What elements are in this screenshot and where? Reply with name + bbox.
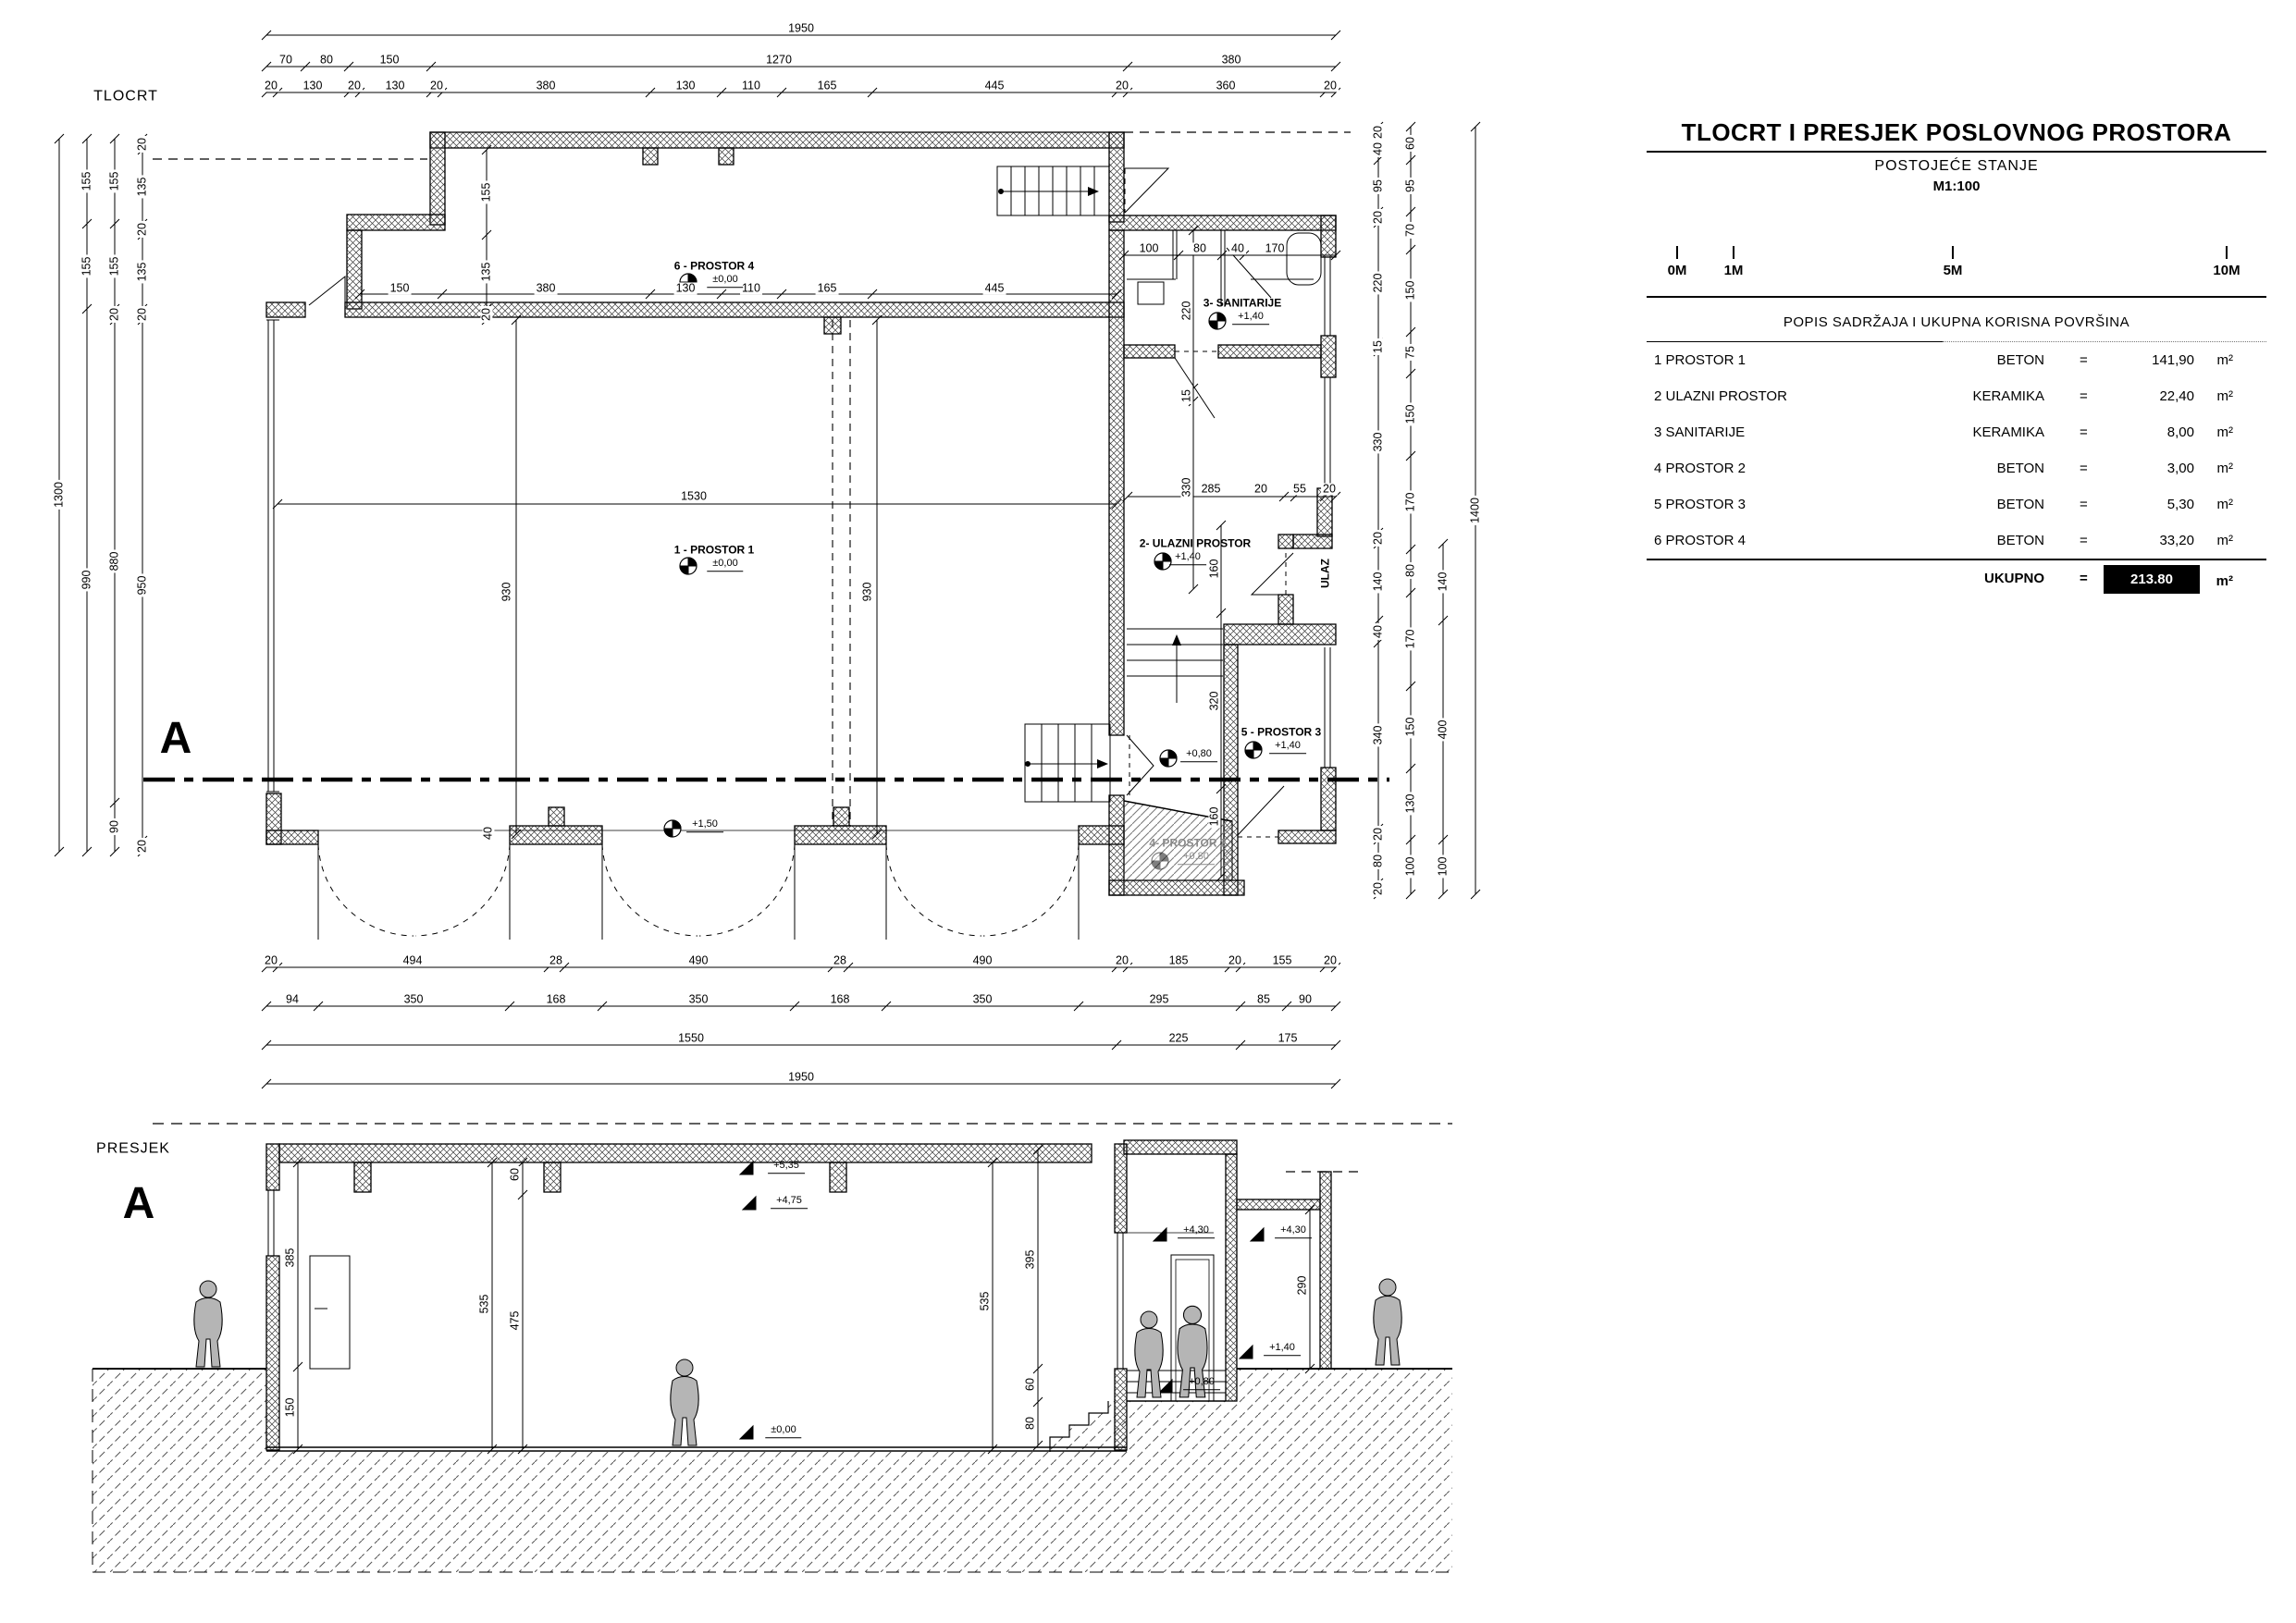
scale-bar-tick (1952, 246, 1954, 259)
dim-label: 130 (384, 80, 407, 92)
level-label: +1,40 (1264, 1343, 1301, 1356)
room-label: 6 - PROSTOR 4 (673, 261, 756, 273)
dim-label: 225 (1167, 1032, 1191, 1044)
dim-label: 80 (1404, 562, 1416, 579)
row-material: KERAMIKA (1972, 388, 2044, 404)
room-label: 4- PROSTOR 2 (1147, 838, 1228, 850)
dim-label: 170 (1404, 491, 1416, 514)
dim-label: 395 (1024, 1248, 1036, 1272)
dim-label: 155 (108, 170, 120, 193)
dim-label: 75 (1404, 344, 1416, 361)
dim-label: 70 (278, 54, 294, 66)
dim-label: 160 (1208, 805, 1220, 829)
level-label: +1,50 (686, 819, 723, 832)
dim-label: 40 (1372, 141, 1384, 157)
row-unit: m² (2217, 352, 2234, 368)
dim-label: 535 (979, 1290, 991, 1313)
dim-label: 28 (832, 954, 848, 966)
dim-label: 140 (1372, 571, 1384, 594)
dim-label: 150 (378, 54, 401, 66)
dim-label: 380 (535, 80, 558, 92)
dim-label: 150 (1404, 403, 1416, 426)
dim-label: 135 (136, 176, 148, 199)
dim-label: 160 (1208, 558, 1220, 581)
dim-label: 135 (480, 261, 492, 284)
dim-label: 360 (1215, 80, 1238, 92)
row-material: BETON (1997, 352, 2044, 368)
dim-label: 400 (1437, 719, 1449, 742)
dim-label: 80 (318, 54, 335, 66)
dim-label: 20 (1372, 880, 1384, 897)
dim-label: 155 (80, 170, 93, 193)
person-silhouette (1135, 1311, 1163, 1397)
dim-label: 150 (1404, 716, 1416, 739)
sheet-subtitle: POSTOJEĆE STANJE (1647, 158, 2266, 175)
level-label: ±0,00 (765, 1425, 801, 1438)
dim-label: 20 (428, 80, 445, 92)
dim-label: 155 (1271, 954, 1294, 966)
level-label: +1,40 (1232, 312, 1269, 325)
dim-label: 950 (136, 574, 148, 597)
section-view (93, 1124, 1452, 1572)
area-table-row: 2 ULAZNI PROSTORKERAMIKA=22,40m² (1647, 378, 2266, 414)
area-table: POPIS SADRŽAJA I UKUPNA KORISNA POVRŠINA… (1647, 296, 2266, 603)
dim-label: 40 (482, 825, 494, 842)
scale-bar-tick (1733, 246, 1734, 259)
level-label: ±0,00 (707, 559, 743, 572)
dim-label: 165 (816, 282, 839, 294)
drawing-sheet: 1950708015012703802013020130203801301101… (0, 0, 2296, 1623)
dim-label: 350 (402, 993, 426, 1005)
dim-label: 94 (284, 993, 301, 1005)
dim-label: 330 (1372, 431, 1384, 454)
person-silhouette (194, 1281, 222, 1367)
dim-label: 15 (1372, 338, 1384, 355)
dim-label: 490 (971, 954, 994, 966)
dim-label: 220 (1372, 272, 1384, 295)
dim-label: 295 (1148, 993, 1171, 1005)
dim-label: 20 (136, 838, 148, 855)
dim-label: 20 (136, 306, 148, 323)
dim-label: 80 (1372, 853, 1384, 869)
dim-label: 20 (136, 221, 148, 238)
dim-label: 175 (1277, 1032, 1300, 1044)
room-label: 3- SANITARIJE (1202, 298, 1283, 310)
row-name: 1 PROSTOR 1 (1654, 352, 1746, 368)
dim-label: 20 (1114, 954, 1130, 966)
row-unit: m² (2217, 497, 2234, 512)
dim-label: 150 (284, 1396, 296, 1420)
dim-label: 130 (302, 80, 325, 92)
area-table-row: 5 PROSTOR 3BETON=5,30m² (1647, 486, 2266, 523)
dim-label: 20 (108, 306, 120, 323)
row-material: BETON (1997, 497, 2044, 512)
area-table-row: 6 PROSTOR 4BETON=33,20m² (1647, 523, 2266, 559)
row-value: 141,90 (2083, 352, 2194, 368)
row-unit: m² (2217, 461, 2234, 476)
dim-label: 290 (1296, 1274, 1308, 1297)
total-unit: m² (2216, 573, 2233, 589)
dim-label: 20 (346, 80, 363, 92)
dim-label: 28 (548, 954, 564, 966)
dim-label: 320 (1208, 690, 1220, 713)
dim-label: 130 (674, 282, 697, 294)
level-label: +4,75 (771, 1196, 808, 1209)
row-unit: m² (2217, 388, 2234, 404)
dim-label: 150 (389, 282, 412, 294)
dim-label: 535 (478, 1293, 490, 1316)
level-label: +4,30 (1275, 1225, 1312, 1238)
room-label: 5 - PROSTOR 3 (1240, 727, 1323, 739)
area-table-rows: 1 PROSTOR 1BETON=141,90m²2 ULAZNI PROSTO… (1647, 342, 2266, 559)
dim-label: 170 (1404, 628, 1416, 651)
dim-label: 285 (1200, 483, 1223, 495)
row-name: 2 ULAZNI PROSTOR (1654, 388, 1787, 404)
area-table-row: 4 PROSTOR 2BETON=3,00m² (1647, 450, 2266, 486)
row-value: 5,30 (2083, 497, 2194, 512)
dim-label: 20 (1253, 483, 1269, 495)
dim-label: 490 (687, 954, 710, 966)
dim-label: 95 (1404, 178, 1416, 194)
dim-label: 1270 (764, 54, 794, 66)
dim-label: 930 (861, 581, 873, 604)
row-value: 3,00 (2083, 461, 2194, 476)
dim-label: 1550 (676, 1032, 706, 1044)
dim-label: 20 (1321, 483, 1338, 495)
dim-label: 60 (1404, 135, 1416, 152)
dim-label: 155 (80, 255, 93, 278)
dim-label: 130 (674, 80, 697, 92)
row-material: BETON (1997, 461, 2044, 476)
dim-label: 380 (1220, 54, 1243, 66)
section-letter: A (158, 716, 194, 762)
dim-label: 80 (1024, 1415, 1036, 1432)
dim-label: 100 (1138, 242, 1161, 254)
scale-bar-label: 1M (1724, 263, 1744, 278)
dim-label: 20 (1227, 954, 1243, 966)
area-table-row: 1 PROSTOR 1BETON=141,90m² (1647, 342, 2266, 378)
total-equals: = (2080, 571, 2088, 586)
dim-label: 380 (535, 282, 558, 294)
sheet-scale: M1:100 (1647, 178, 2266, 194)
dim-label: 340 (1372, 724, 1384, 747)
dim-label: 70 (1404, 222, 1416, 239)
dim-label: 990 (80, 569, 93, 592)
area-table-row: 3 SANITARIJEKERAMIKA=8,00m² (1647, 414, 2266, 450)
dim-label: 385 (284, 1247, 296, 1270)
dim-label: 85 (1255, 993, 1272, 1005)
dim-label: 165 (816, 80, 839, 92)
dim-label: 930 (500, 581, 512, 604)
dim-label: 1530 (679, 490, 709, 502)
dim-label: 1400 (1469, 496, 1481, 525)
dim-label: 60 (509, 1166, 521, 1183)
dim-label: 20 (480, 306, 492, 323)
row-unit: m² (2217, 533, 2234, 548)
dim-label: 170 (1264, 242, 1287, 254)
dim-label: 880 (108, 550, 120, 573)
dim-label: 155 (108, 255, 120, 278)
scale-bar-tick (1676, 246, 1678, 259)
dim-label: 475 (509, 1309, 521, 1333)
dim-label: 100 (1437, 855, 1449, 879)
dim-label: 155 (480, 181, 492, 204)
person-silhouette (671, 1359, 698, 1445)
row-value: 22,40 (2083, 388, 2194, 404)
view-title: TLOCRT (92, 90, 160, 105)
scale-bar-tick (2226, 246, 2228, 259)
row-material: KERAMIKA (1972, 424, 2044, 440)
dim-label: 90 (1297, 993, 1314, 1005)
row-unit: m² (2217, 424, 2234, 440)
dim-label: 20 (1114, 80, 1130, 92)
row-name: 3 SANITARIJE (1654, 424, 1745, 440)
dim-label: 20 (1372, 209, 1384, 226)
dim-label: 110 (740, 80, 762, 92)
title-block: TLOCRT I PRESJEK POSLOVNOG PROSTORA POST… (1647, 118, 2266, 603)
scale-bar: 0M1M5M10M (1647, 220, 2266, 285)
level-label: +1,40 (1269, 741, 1306, 754)
level-label: +4,30 (1178, 1225, 1215, 1238)
dim-label: 95 (1372, 178, 1384, 194)
dim-label: 445 (983, 282, 1006, 294)
dim-label: 168 (545, 993, 568, 1005)
area-table-total-row: UKUPNO = 213.80 m² (1647, 560, 2266, 603)
dim-label: 168 (829, 993, 852, 1005)
title-rule (1647, 151, 2266, 153)
total-label: UKUPNO (1984, 571, 2044, 586)
dim-label: 1950 (786, 1071, 816, 1083)
dim-label: 220 (1180, 300, 1192, 323)
row-value: 8,00 (2083, 424, 2194, 440)
dim-label: 494 (401, 954, 425, 966)
dim-label: 130 (1404, 793, 1416, 816)
level-label: +0,80 (1180, 749, 1217, 762)
row-value: 33,20 (2083, 533, 2194, 548)
row-name: 6 PROSTOR 4 (1654, 533, 1746, 548)
dim-label: 445 (983, 80, 1006, 92)
dim-label: 90 (108, 818, 120, 835)
row-material: BETON (1997, 533, 2044, 548)
total-value: 213.80 (2104, 565, 2200, 594)
row-name: 5 PROSTOR 3 (1654, 497, 1746, 512)
sheet-title: TLOCRT I PRESJEK POSLOVNOG PROSTORA (1647, 118, 2266, 147)
dim-label: 20 (136, 136, 148, 153)
dim-label: 1300 (53, 480, 65, 510)
dim-label: 150 (1404, 279, 1416, 302)
dim-label: 60 (1024, 1376, 1036, 1393)
dim-label: 350 (971, 993, 994, 1005)
dim-label: 135 (136, 261, 148, 284)
level-label: +0,80 (1183, 1377, 1220, 1390)
dim-label: 40 (1229, 242, 1246, 254)
dim-label: 20 (1372, 826, 1384, 842)
dim-label: 100 (1404, 855, 1416, 879)
area-table-title: POPIS SADRŽAJA I UKUPNA KORISNA POVRŠINA (1647, 314, 2266, 330)
scale-bar-label: 5M (1944, 263, 1963, 278)
row-name: 4 PROSTOR 2 (1654, 461, 1746, 476)
dim-label: 55 (1291, 483, 1308, 495)
room-label: ULAZ (1320, 557, 1332, 590)
dim-label: 330 (1180, 476, 1192, 499)
dim-label: 140 (1437, 571, 1449, 594)
dim-label: 40 (1372, 623, 1384, 640)
level-label: +5,35 (768, 1161, 805, 1174)
scale-bar-label: 10M (2213, 263, 2240, 278)
dim-label: 20 (263, 954, 279, 966)
level-label: +0,80 (1178, 852, 1215, 865)
dim-label: 185 (1167, 954, 1191, 966)
scale-bar-label: 0M (1668, 263, 1687, 278)
level-label: ±0,00 (707, 275, 743, 288)
dim-label: 15 (1180, 387, 1192, 404)
person-silhouette (1374, 1279, 1401, 1365)
room-label: 2- ULAZNI PROSTOR (1138, 538, 1253, 550)
view-title: PRESJEK (94, 1142, 172, 1158)
dim-label: 20 (1372, 530, 1384, 547)
dim-label: 20 (263, 80, 279, 92)
dim-label: 20 (1372, 124, 1384, 141)
room-label: 1 - PROSTOR 1 (673, 545, 756, 557)
section-letter: A (121, 1181, 157, 1227)
level-label: +1,40 (1169, 552, 1206, 565)
dim-label: 350 (687, 993, 710, 1005)
dim-label: 80 (1191, 242, 1208, 254)
dim-label: 20 (1322, 954, 1339, 966)
dim-label: 1950 (786, 22, 816, 34)
dim-label: 20 (1322, 80, 1339, 92)
